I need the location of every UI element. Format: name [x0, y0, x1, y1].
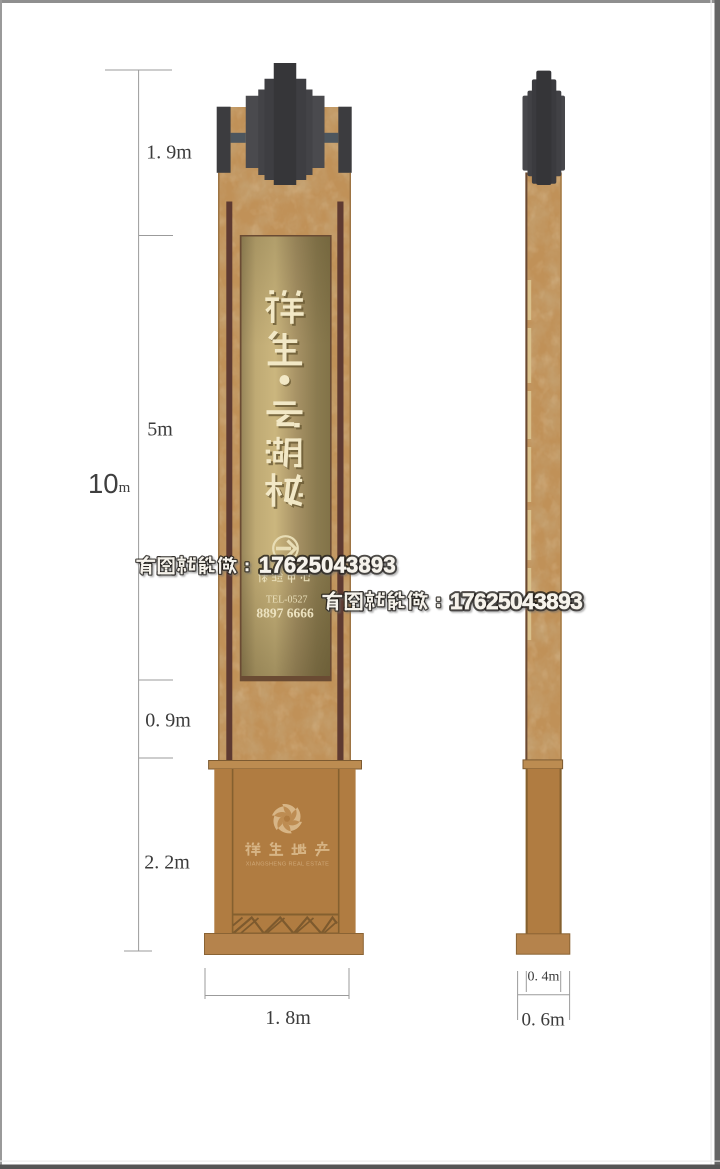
svg-text:17625043893: 17625043893 [259, 553, 396, 578]
svg-text:1. 8m: 1. 8m [265, 1007, 311, 1029]
svg-text:17625043893: 17625043893 [450, 589, 582, 614]
svg-text:1. 9m: 1. 9m [146, 142, 192, 164]
svg-text:5m: 5m [147, 419, 173, 441]
svg-text:0. 4m: 0. 4m [528, 970, 560, 985]
svg-text:TEL-0527: TEL-0527 [266, 595, 308, 606]
svg-text:0. 6m: 0. 6m [522, 1010, 566, 1031]
svg-text:XIANGSHENG REAL ESTATE: XIANGSHENG REAL ESTATE [246, 862, 329, 868]
svg-text:0. 9m: 0. 9m [145, 710, 191, 732]
svg-text:8897 6666: 8897 6666 [256, 606, 314, 621]
svg-text:2. 2m: 2. 2m [144, 852, 190, 874]
